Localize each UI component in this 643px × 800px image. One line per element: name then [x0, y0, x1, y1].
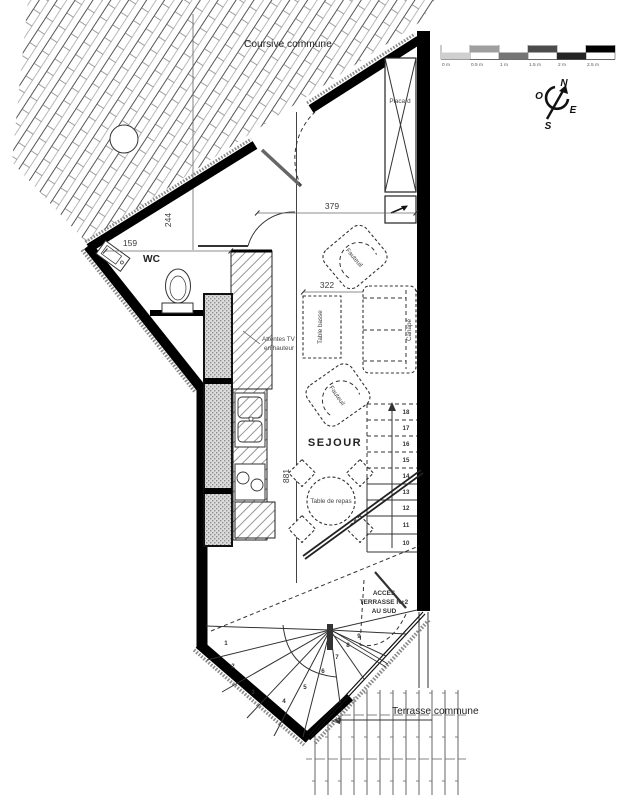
entry-door-swing [295, 112, 315, 186]
acces-label-line2: TERRASSE R+2 [360, 599, 409, 606]
tread-number: 1 [224, 640, 228, 647]
tread-number: 15 [403, 457, 410, 464]
toilet-tank [162, 303, 193, 313]
tread-number: 12 [403, 505, 410, 512]
duct-band [204, 294, 232, 546]
kitchen-lower-cabinet [235, 502, 275, 538]
tread-number: 6 [321, 668, 325, 675]
compass-north: N [560, 78, 568, 89]
tread-number: 10 [403, 540, 410, 547]
scale-label: 2 m [558, 62, 566, 68]
scale-label: 1 m [500, 62, 508, 68]
tread-number: 5 [303, 684, 307, 691]
dim-322: 322 [320, 280, 334, 290]
compass-west: O [535, 91, 543, 102]
tread-number: 11 [403, 522, 410, 529]
dining-chair [347, 460, 374, 487]
tread-number: 2 [231, 663, 235, 670]
scale-label: 1.5 m [529, 62, 541, 68]
placard-label: Placard [389, 98, 411, 105]
sejour-label: SEJOUR [308, 437, 362, 449]
deck-column [110, 125, 138, 153]
dining-chair [289, 516, 316, 543]
dim-379: 379 [325, 201, 339, 211]
scale-label: 0 m [442, 62, 450, 68]
tread-number: 8 [346, 642, 350, 649]
scale-segment [470, 46, 499, 53]
coffee-table: Table basse [303, 296, 341, 358]
scale-segment [586, 46, 615, 53]
tread-number: 16 [403, 441, 410, 448]
sofa-label: Canapé [406, 318, 413, 341]
tread-number: 18 [403, 409, 410, 416]
dim-244: 244 [163, 213, 173, 227]
wc-door-swing [248, 212, 295, 246]
tread-number: 17 [403, 425, 410, 432]
dim-881: 881 [281, 469, 291, 483]
tv-note-line2: en hauteur [264, 345, 294, 352]
newel-post [327, 624, 333, 650]
dining-chair [289, 460, 316, 487]
coffee-table-label: Table basse [317, 310, 324, 344]
entry-door [262, 112, 315, 186]
kitchen [233, 389, 275, 540]
toilet [166, 269, 191, 303]
living-room: Fauteuil Fauteuil Canapé Table basse SEJ… [289, 221, 416, 542]
tread-number: 13 [403, 489, 410, 496]
dining-table-label: Table de repas [310, 498, 351, 505]
floor-plan-page: Coursive commune Terrasse commune [0, 0, 643, 800]
wall-left-diagonal [88, 246, 201, 388]
compass-east: E [570, 105, 577, 116]
scale-segment [499, 53, 528, 60]
compass-south: S [545, 121, 552, 132]
wall-right [417, 31, 430, 611]
faucet-icon [249, 417, 253, 421]
cooktop [235, 464, 265, 500]
coursive-label: Coursive commune [244, 39, 332, 50]
compass-rose: N O E S [535, 78, 577, 132]
scale-label: 2.5 m [587, 62, 599, 68]
placard-closet: Placard [385, 58, 416, 223]
armchair-mid: Fauteuil [302, 360, 374, 430]
tv-note-line1: Attentes TV [262, 336, 296, 343]
scale-segment [441, 53, 470, 60]
dining-table: Table de repas [289, 460, 374, 543]
tread-number: 7 [335, 654, 339, 661]
tread-number: 14 [403, 473, 410, 480]
acces-label-line1: ACCES [373, 590, 396, 597]
wc-label: WC [143, 254, 161, 265]
terrace-label: Terrasse commune [392, 706, 479, 717]
dim-159: 159 [123, 238, 137, 248]
scale-label: 0.5 m [471, 62, 483, 68]
coursive-deck-area: Coursive commune [12, 0, 435, 242]
floor-plan-drawing: Coursive commune Terrasse commune [0, 0, 643, 800]
sofa: Canapé [363, 286, 416, 373]
tread-number: 4 [282, 698, 286, 705]
scale-segment [557, 53, 586, 60]
tread-number: 3 [251, 689, 255, 696]
acces-label-line3: AU SUD [372, 608, 397, 615]
scale-segment [528, 46, 557, 53]
scale-bar: 0 m 0.5 m 1 m 1.5 m 2 m 2.5 m [441, 45, 615, 68]
terrace-deck-area: Terrasse commune [306, 690, 479, 795]
